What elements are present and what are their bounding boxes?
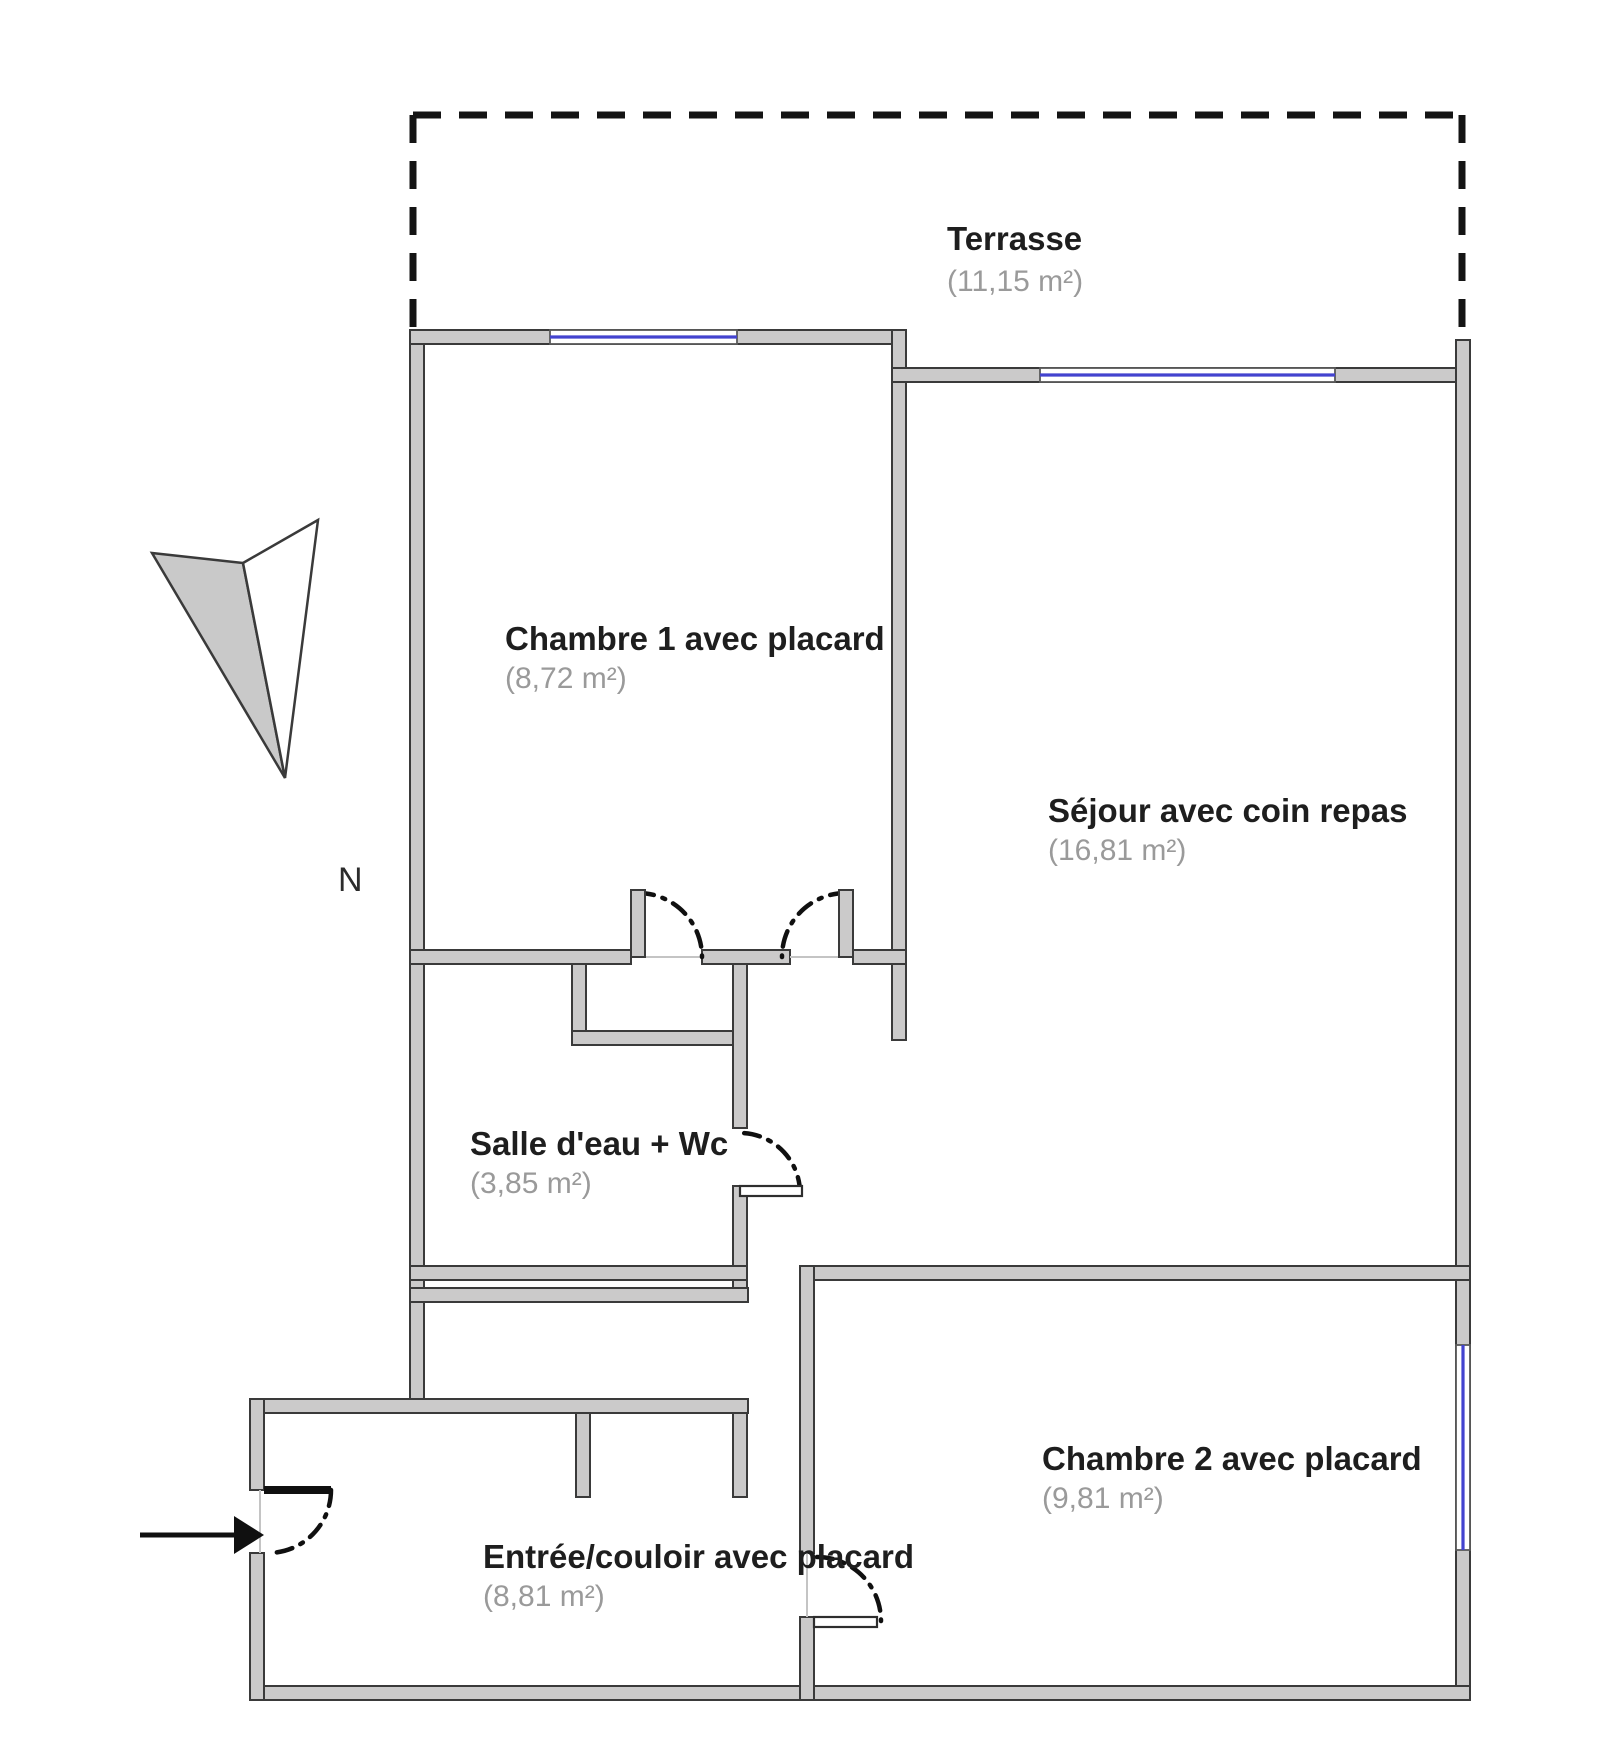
- door-chambre1-placard-swing-arc: [638, 893, 702, 957]
- wall: [572, 1031, 747, 1045]
- door-chambre1-placard-leaf: [631, 890, 645, 957]
- wall: [576, 1413, 590, 1497]
- room-label-salle_eau: Salle d'eau + Wc: [470, 1125, 728, 1162]
- wall: [800, 1617, 814, 1700]
- floor-plan-drawing: N Terrasse(11,15 m²)Chambre 1 avec placa…: [0, 0, 1600, 1747]
- wall: [800, 1266, 1470, 1280]
- wall: [410, 330, 424, 1413]
- terrace-dashed-boundary: [413, 115, 1462, 355]
- windows-layer: [550, 330, 1470, 1550]
- floor-plan-page: N Terrasse(11,15 m²)Chambre 1 avec placa…: [0, 0, 1600, 1747]
- wall: [410, 1266, 747, 1280]
- wall: [892, 330, 906, 1040]
- door-chambre2-leaf: [814, 1617, 877, 1627]
- wall: [733, 1413, 747, 1497]
- room-area-chambre1: (8,72 m²): [505, 662, 627, 695]
- door-entree-swing-arc: [268, 1490, 331, 1553]
- door-salle-eau-swing-arc: [740, 1133, 800, 1193]
- wall: [250, 1553, 264, 1700]
- wall: [853, 950, 906, 964]
- north-label: N: [338, 861, 363, 899]
- room-label-entree: Entrée/couloir avec placard: [483, 1538, 914, 1575]
- door-salle-eau-leaf: [740, 1186, 802, 1196]
- wall: [702, 950, 790, 964]
- wall: [733, 964, 747, 1128]
- wall: [800, 1266, 814, 1553]
- room-area-chambre2: (9,81 m²): [1042, 1482, 1164, 1515]
- walls-layer: [250, 330, 1470, 1700]
- room-area-salle_eau: (3,85 m²): [470, 1167, 592, 1200]
- door-entree-leaf: [264, 1486, 331, 1494]
- room-area-terrasse: (11,15 m²): [947, 265, 1083, 298]
- room-area-entree: (8,81 m²): [483, 1580, 605, 1613]
- wall: [733, 1186, 747, 1302]
- door-chambre1-leaf: [839, 890, 853, 957]
- doors-layer: [260, 890, 881, 1627]
- room-area-sejour: (16,81 m²): [1048, 834, 1186, 867]
- wall: [250, 1399, 748, 1413]
- wall: [410, 950, 631, 964]
- room-label-chambre2: Chambre 2 avec placard: [1042, 1440, 1422, 1477]
- room-label-sejour: Séjour avec coin repas: [1048, 792, 1408, 829]
- north-compass-icon: N: [152, 520, 363, 899]
- wall: [410, 1288, 748, 1302]
- wall: [250, 1399, 264, 1490]
- door-chambre1-swing-arc: [782, 893, 846, 957]
- entrance-arrow-icon: [140, 1516, 264, 1554]
- room-label-chambre1: Chambre 1 avec placard: [505, 620, 885, 657]
- wall: [250, 1686, 1470, 1700]
- room-label-terrasse: Terrasse: [947, 220, 1082, 257]
